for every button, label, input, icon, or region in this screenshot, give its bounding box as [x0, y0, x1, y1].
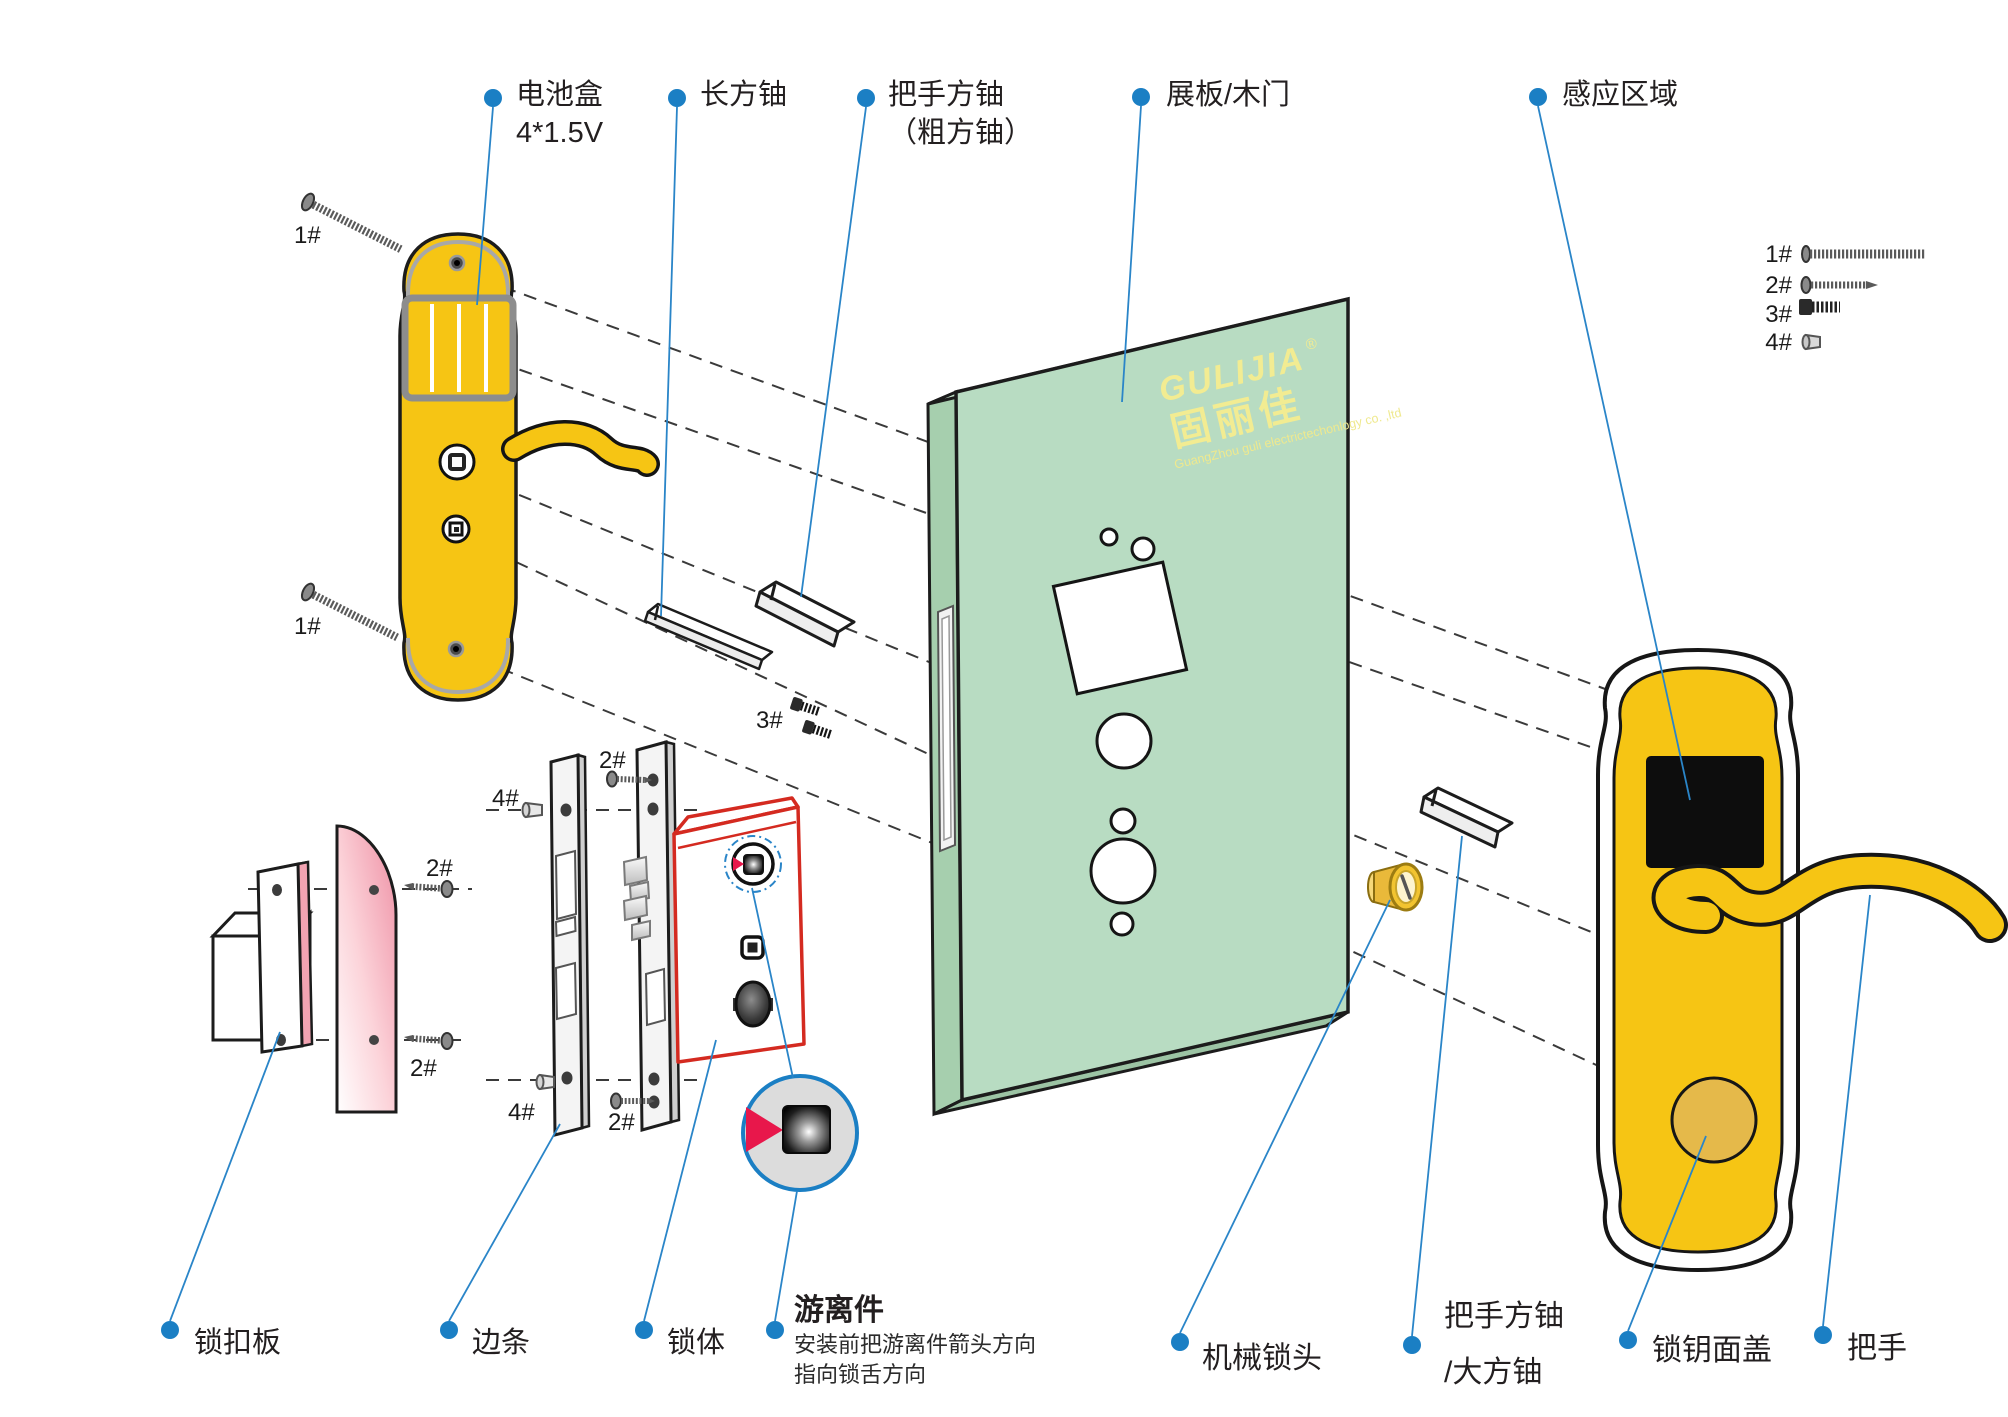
door-hole-small-c — [1111, 809, 1135, 833]
legend-row-2-label: 2# — [1765, 272, 1792, 299]
strike-cover — [337, 826, 396, 1112]
door-mortise-slot-inner — [942, 616, 951, 840]
panel-screw-hole-bottom-center — [453, 646, 459, 652]
label-handle-shaft-sub: （粗方铀） — [888, 116, 1033, 149]
legend-screw-2-icon — [1802, 277, 1811, 293]
leader-line — [1823, 895, 1870, 1326]
legend-screw-2-tip — [1866, 281, 1878, 289]
label-battery-spec: 4*1.5V — [516, 117, 604, 149]
lock-hub — [742, 937, 763, 958]
door-panel: GULIJIA ® 固丽佳 GuangZhou guli electrictec… — [928, 299, 1403, 1114]
leader-line — [1412, 836, 1462, 1336]
label-floating-note-2: 指向锁舌方向 — [794, 1362, 926, 1387]
lock-installation-diagram: GULIJIA ® 固丽佳 GuangZhou guli electrictec… — [0, 0, 2008, 1417]
callout-dot — [1403, 1336, 1421, 1354]
screw-label-1-bottom: 1# — [294, 613, 321, 640]
callout-dot — [1814, 1326, 1832, 1344]
screw-label-2-strike-lower: 2# — [410, 1055, 437, 1082]
callout-dot — [440, 1321, 458, 1339]
strike-bracket-plate — [258, 862, 312, 1052]
screw-label-1-top: 1# — [294, 222, 321, 249]
indoor-handle — [514, 433, 647, 464]
leader-line — [449, 1124, 560, 1321]
screw-label-4-top: 4# — [492, 785, 519, 812]
door-hole-small-d — [1111, 913, 1133, 935]
label-lock-body: 锁体 — [667, 1326, 725, 1359]
label-strike-plate: 锁扣板 — [194, 1326, 281, 1359]
handle-spindle-big — [1421, 788, 1512, 847]
legend-row-4-label: 4# — [1765, 329, 1792, 356]
label-edge-strip: 边条 — [472, 1326, 530, 1359]
screw-label-3: 3# — [756, 707, 783, 734]
door-hole-small-b — [1132, 538, 1154, 560]
label-handle-shaft2: 把手方铀 — [1444, 1300, 1564, 1333]
handle-spindle-thick — [756, 582, 854, 646]
screw-legend: 1# 2# 3# 4# — [1765, 241, 1926, 356]
label-floating-note-1: 安装前把游离件箭头方向 — [794, 1332, 1036, 1357]
legend-screw-3-icon — [1799, 299, 1812, 315]
label-floating-part: 游离件 — [794, 1294, 884, 1327]
label-handle-shaft: 把手方铀 — [888, 78, 1004, 111]
screw-label-4-bottom: 4# — [508, 1099, 535, 1126]
callout-dot — [1132, 88, 1150, 106]
legend-row-1-label: 1# — [1765, 241, 1792, 268]
label-key-cover: 锁钥面盖 — [1652, 1334, 1772, 1367]
leader-line — [801, 107, 866, 597]
fastener-4-top — [523, 803, 543, 817]
screw-label-2-strip-top: 2# — [599, 747, 626, 774]
long-spindle — [645, 604, 772, 669]
door-hole-square — [1053, 562, 1186, 694]
screw-label-2-strike-upper: 2# — [426, 855, 453, 882]
door-hole-cylinder — [1091, 839, 1155, 903]
key-cover-cap — [1672, 1078, 1756, 1162]
detail-square — [783, 1106, 830, 1153]
callout-dot — [484, 89, 502, 107]
latch-bolts — [624, 857, 650, 940]
callout-dot — [857, 89, 875, 107]
outdoor-handle — [1670, 871, 1990, 925]
sensor-window — [1646, 756, 1764, 868]
label-door: 展板/木门 — [1166, 78, 1290, 111]
leader-line — [170, 1032, 280, 1321]
edge-strip-left — [551, 755, 589, 1135]
outdoor-panel-face — [1614, 668, 1782, 1252]
door-hole-small-a — [1101, 529, 1117, 545]
indoor-panel — [400, 234, 647, 700]
legend-row-3-label: 3# — [1765, 301, 1792, 328]
exploded-view-svg: GULIJIA ® 固丽佳 GuangZhou guli electrictec… — [0, 0, 2008, 1417]
callout-dot — [1529, 88, 1547, 106]
panel-screw-hole-top-center — [454, 260, 460, 266]
callout-dot — [635, 1321, 653, 1339]
callout-dot — [668, 89, 686, 107]
screw-2-strike-lower — [404, 1033, 453, 1049]
spindle-hole-lower-center — [454, 527, 459, 532]
label-sensing-area: 感应区域 — [1562, 78, 1678, 111]
screw-2-strike-upper — [404, 881, 453, 897]
label-long-shaft: 长方铀 — [700, 78, 787, 111]
cover-hole-lower — [369, 1035, 379, 1045]
fastener-4-bottom — [537, 1075, 555, 1089]
outdoor-panel — [1598, 650, 1990, 1270]
label-battery-box: 电池盒 — [516, 78, 603, 111]
leader-line — [661, 107, 677, 616]
label-mech-cylinder: 机械锁头 — [1202, 1342, 1322, 1375]
screw-3-pair — [790, 697, 835, 742]
callout-dot — [161, 1321, 179, 1339]
lock-body-box — [674, 798, 804, 1062]
label-handle: 把手 — [1847, 1332, 1907, 1365]
floating-part-detail — [743, 1076, 857, 1190]
spindle-hole-upper-square — [450, 455, 464, 469]
legend-screw-4-cap — [1803, 335, 1810, 349]
screw-label-2-strip-bottom: 2# — [608, 1109, 635, 1136]
legend-screw-1-icon — [1802, 246, 1810, 262]
callout-dot — [1171, 1333, 1189, 1351]
bracket-hole-upper — [272, 884, 282, 896]
callout-dot — [766, 1321, 784, 1339]
door-hole-handle — [1097, 714, 1151, 768]
callout-dot — [1619, 1331, 1637, 1349]
mech-cylinder — [1368, 864, 1422, 910]
cover-hole-upper — [369, 885, 379, 895]
label-handle-shaft2-sub: /大方铀 — [1444, 1356, 1542, 1389]
